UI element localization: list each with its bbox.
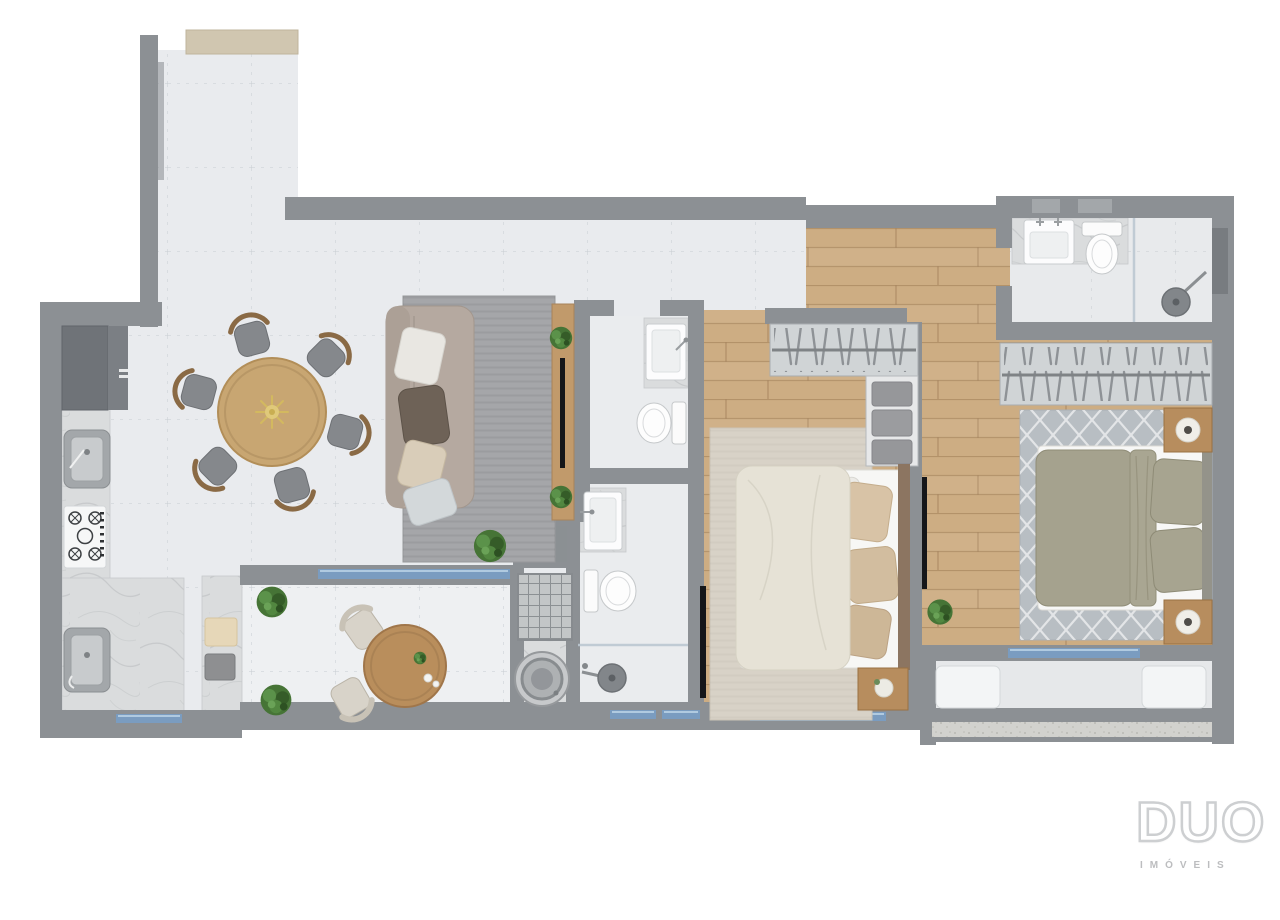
bed2-blanket [1036, 450, 1134, 606]
floor-plan-canvas: DUO IMÓVEIS [0, 0, 1280, 920]
bed2-blanket-fold [1130, 450, 1156, 606]
bistro-table [364, 625, 446, 707]
bedroom2-nightstand-top [1164, 408, 1212, 452]
rain-shower-head [598, 664, 626, 692]
rear-balcony-ledge [932, 722, 1212, 737]
wall-top-hallway [806, 205, 1010, 228]
bedroom1-tv [700, 586, 706, 698]
towel-beige [205, 618, 237, 646]
floor-plan [0, 0, 1280, 920]
bed1-blanket [736, 466, 850, 670]
wall-bath-divider [574, 468, 704, 484]
bathroom2-toilet [584, 570, 636, 612]
bed1-headboard [898, 464, 910, 670]
table-cup-b [433, 681, 439, 687]
cabinet-handle-a [119, 369, 128, 372]
table-mini-plant [414, 652, 427, 665]
bathroom2-vanity [580, 492, 622, 550]
kitchen-cabinet [108, 326, 128, 410]
bedroom2-floor-plant [927, 599, 952, 624]
wall-suite-left-a [996, 196, 1012, 248]
bedroom1-shelves [866, 376, 918, 466]
cabinet-handle-b [119, 375, 128, 378]
bedroom1-nightstand [858, 668, 908, 710]
sofa [386, 306, 474, 527]
washing-machine [515, 652, 569, 706]
bathroom1-toilet [637, 402, 686, 444]
bedroom2-wardrobe [1000, 343, 1212, 405]
towel-gray [205, 654, 235, 680]
balcony-plant-bottom [261, 685, 292, 716]
panel-plant-bottom [550, 486, 572, 508]
living-room [386, 296, 574, 562]
bedroom2-nightstand-bottom [1164, 600, 1212, 644]
bedroom1-bed [736, 464, 910, 670]
vent-grate [518, 574, 572, 640]
bed2-headboard [1202, 448, 1212, 608]
suite-shower-head [1162, 288, 1190, 316]
wall-top-main [285, 197, 806, 220]
wall-left-outer [40, 302, 62, 738]
wall-suite-left-b [996, 286, 1012, 324]
panel-plant-top [550, 327, 572, 349]
corridor-wall-shadow [158, 62, 164, 180]
entry-door-sill [186, 30, 298, 54]
shower-valve [582, 663, 588, 669]
entry-hall [186, 30, 298, 54]
rear-bench-right [1142, 666, 1206, 708]
bedroom2-tv [922, 477, 927, 589]
refrigerator-cabinet [62, 326, 108, 410]
ac-niche-b [1078, 199, 1112, 213]
wall-bedroom1-top [765, 308, 907, 324]
wall-corridor-left [140, 35, 158, 327]
wall-bath-left [574, 300, 590, 522]
bedroom2-bed [1036, 446, 1212, 610]
cooktop [64, 506, 106, 568]
right-wall-duct [1212, 228, 1228, 294]
laundry-sink [64, 628, 110, 692]
gold-centerpiece [256, 396, 288, 428]
brand-logo-subtitle: IMÓVEIS [1136, 860, 1272, 871]
ac-niche-a [1032, 199, 1060, 213]
wall-bath1-top-a [590, 300, 614, 316]
kitchen-sink [64, 430, 110, 488]
living-floor-plant [474, 530, 506, 562]
brand-logo: DUO IMÓVEIS [1136, 794, 1272, 871]
bedroom1-wardrobe [770, 324, 918, 376]
bathroom1-vanity [646, 324, 689, 380]
suite-sink [1024, 218, 1074, 264]
wall-suite-bottom [996, 322, 1212, 340]
balcony-plant-top [257, 587, 288, 618]
living-tv [560, 358, 565, 468]
table-cup-a [424, 674, 432, 682]
rear-bench-left [936, 666, 1000, 708]
brand-logo-text: DUO [1136, 794, 1272, 850]
